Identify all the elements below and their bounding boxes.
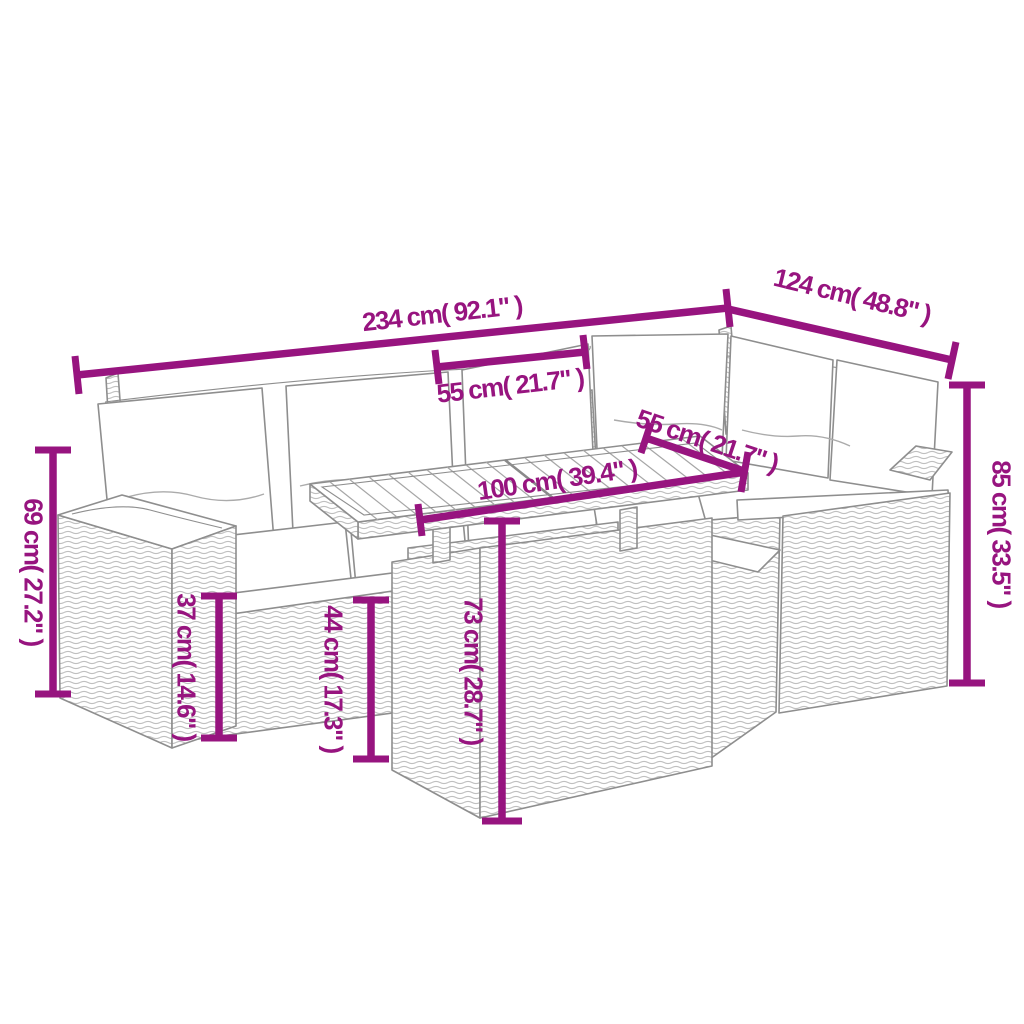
table-support: [620, 507, 637, 551]
sofa-base: [779, 493, 950, 713]
diagram-canvas: 234 cm( 92.1" ) 124 cm( 48.8" ) 55 cm( 2…: [0, 0, 1024, 1024]
dimension-label-37: 37 cm( 14.6" ): [171, 593, 202, 740]
table-pedestal-front: [480, 518, 712, 818]
dimension-label-73: 73 cm( 28.7" ): [458, 597, 489, 744]
dimension-label-85: 85 cm( 33.5" ): [986, 460, 1017, 607]
dimension-label-69: 69 cm( 27.2" ): [18, 498, 49, 645]
diagram-line-art: [0, 0, 1024, 1024]
dimension-label-44: 44 cm( 17.3" ): [318, 605, 349, 752]
armrest-left: [58, 515, 172, 748]
dimension-line-85: [949, 385, 985, 683]
